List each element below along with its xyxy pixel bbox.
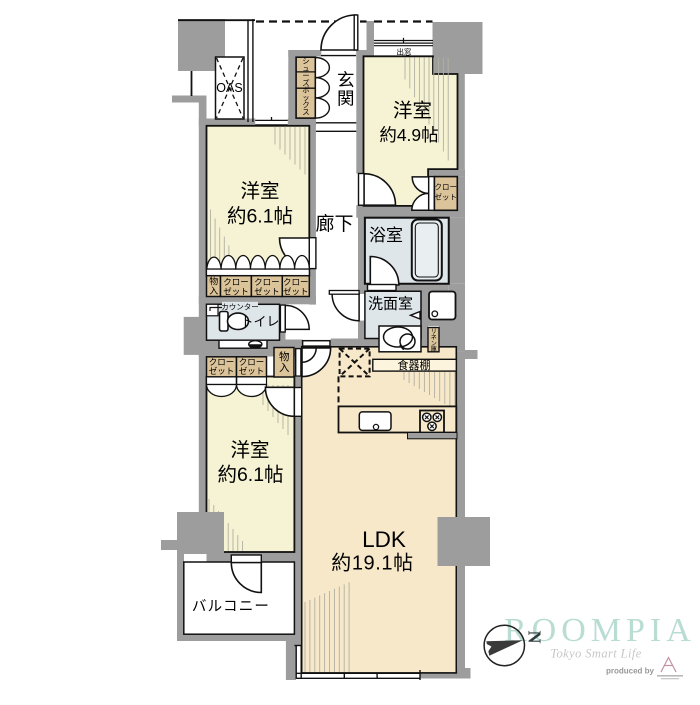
svg-text:クローゼット: クローゼット: [283, 277, 309, 297]
svg-text:OAS: OAS: [216, 81, 242, 95]
svg-text:シューズボックス: シューズボックス: [302, 57, 310, 117]
svg-text:出窓: 出窓: [397, 47, 412, 57]
svg-text:廊下: 廊下: [315, 213, 353, 235]
svg-text:トイレ: トイレ: [240, 314, 279, 329]
svg-text:玄関: 玄関: [337, 70, 355, 109]
svg-text:バルコニー: バルコニー: [192, 599, 270, 615]
svg-text:カウンター: カウンター: [221, 303, 259, 312]
svg-text:クローゼット: クローゼット: [254, 277, 280, 297]
svg-text:浴室: 浴室: [369, 226, 403, 245]
svg-text:produced by: produced by: [606, 667, 655, 676]
svg-text:約6.1帖: 約6.1帖: [217, 464, 283, 486]
svg-text:クローゼット: クローゼット: [209, 357, 235, 376]
svg-text:物入: 物入: [279, 350, 290, 374]
svg-text:クローゼット: クローゼット: [435, 183, 458, 202]
svg-text:約4.9帖: 約4.9帖: [379, 125, 438, 145]
svg-text:洋室: 洋室: [393, 100, 432, 122]
svg-text:約6.1帖: 約6.1帖: [227, 206, 293, 228]
svg-text:LDK: LDK: [362, 527, 406, 552]
svg-text:食器棚: 食器棚: [398, 358, 431, 372]
svg-text:クローゼット: クローゼット: [239, 357, 265, 376]
svg-text:物入: 物入: [209, 276, 218, 297]
svg-text:洋室: 洋室: [240, 181, 279, 203]
svg-text:リネン庫: リネン庫: [431, 329, 437, 354]
svg-text:洗面室: 洗面室: [368, 296, 413, 313]
svg-text:約19.1帖: 約19.1帖: [331, 552, 414, 575]
svg-text:N: N: [524, 631, 544, 644]
svg-text:Tokyo Smart Life: Tokyo Smart Life: [550, 647, 641, 661]
svg-text:クローゼット: クローゼット: [223, 277, 249, 297]
svg-text:洋室: 洋室: [230, 440, 269, 462]
